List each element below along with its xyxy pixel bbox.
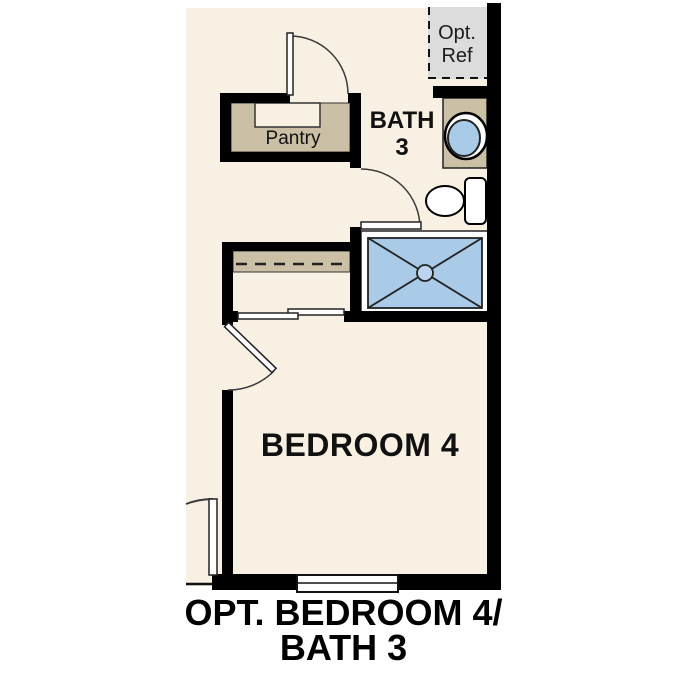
plan-caption-line2: BATH 3 (0, 630, 687, 665)
shower-drain (417, 265, 433, 281)
bedroom4-label: BEDROOM 4 (233, 427, 487, 464)
door-leaf (287, 33, 293, 95)
plan-caption: OPT. BEDROOM 4/ BATH 3 (0, 595, 687, 665)
wall-closet-stub-left (222, 311, 238, 322)
wall-pantry-bottom (220, 152, 361, 162)
opt-ref-label-line1: Opt. (430, 22, 484, 45)
floorplan-canvas: Opt. Ref Pantry BATH 3 BEDROOM 4 OPT. BE… (0, 0, 687, 687)
plan-caption-line1: OPT. BEDROOM 4/ (0, 595, 687, 630)
wall-right (487, 3, 501, 590)
closet-shelf (233, 251, 350, 272)
bedroom-window (297, 575, 398, 592)
shower-fixture (361, 231, 488, 314)
sink-fixture (445, 113, 487, 159)
wall-bath-left-lower (350, 227, 361, 322)
opt-ref-label: Opt. Ref (430, 22, 484, 68)
wall-left-lower (222, 390, 233, 575)
bath3-label: BATH 3 (358, 107, 446, 161)
pantry-label: Pantry (233, 128, 353, 150)
door-leaf (209, 499, 217, 575)
wall-closet-top (222, 242, 350, 251)
door-leaf (361, 222, 421, 229)
floorplan-drawing (0, 0, 687, 687)
wall-pantry-left (220, 93, 231, 162)
wall-ref-stub (433, 86, 487, 98)
opt-ref-label-line2: Ref (430, 45, 484, 68)
sliding-door-front (238, 313, 298, 319)
wall-bedroom-top (344, 311, 501, 322)
bath3-label-line1: BATH (358, 107, 446, 134)
bath3-label-line2: 3 (358, 134, 446, 161)
